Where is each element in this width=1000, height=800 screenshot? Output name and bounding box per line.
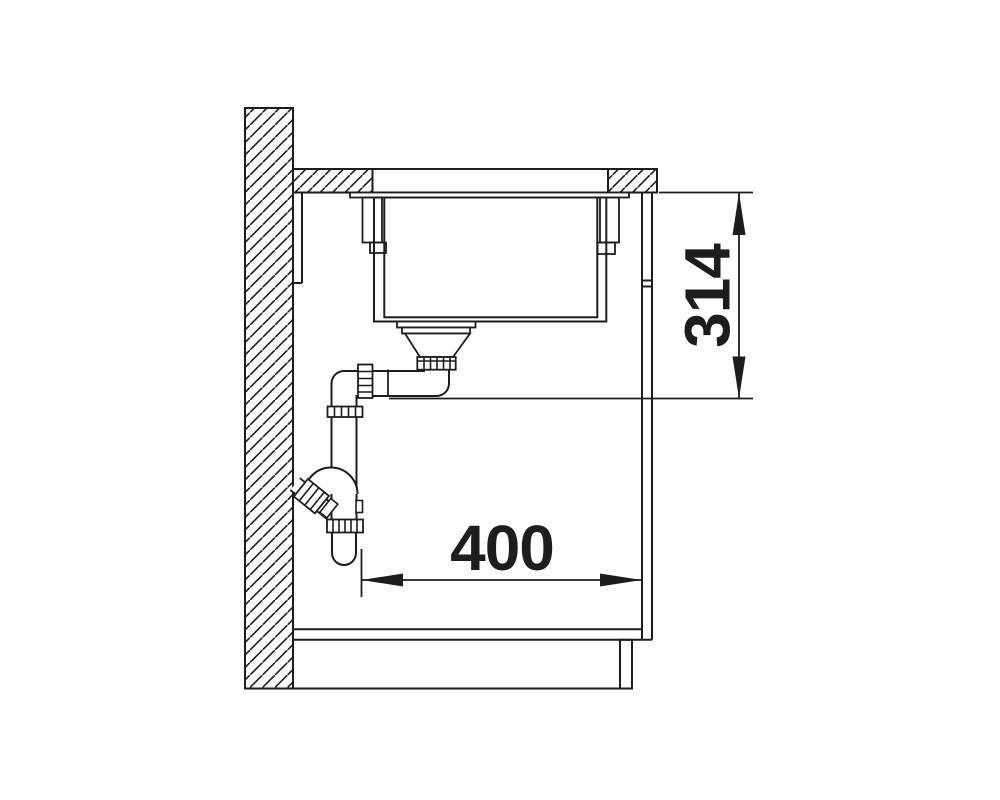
technical-drawing-canvas: 314 400 [0,0,1000,800]
countertop-right-section [608,169,657,193]
sink-section-drawing: 314 400 [0,0,1000,800]
dimension-width-label: 400 [450,512,554,584]
countertop-cutout-section [373,169,609,193]
coupling-nut-upper [328,407,363,418]
dimension-height-label: 314 [672,243,744,348]
background [0,0,1000,800]
countertop [293,169,657,193]
wall-section-hatched [245,108,293,689]
countertop-left-section [293,169,373,193]
strainer-locknut [417,357,455,370]
coupling-nut-elbow [358,365,373,399]
pipe-clip [356,501,363,513]
